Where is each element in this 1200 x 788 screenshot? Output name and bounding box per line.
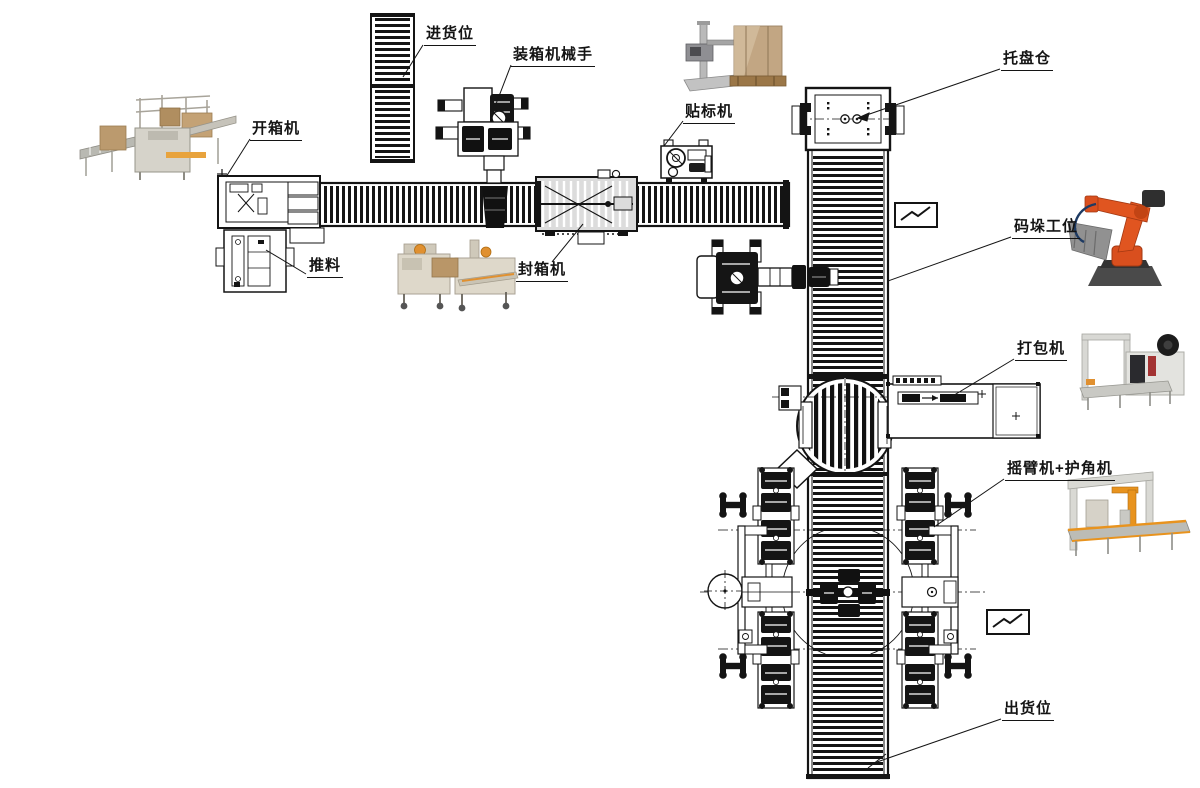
strapping-machine-photo [1080,334,1184,410]
case-sealer-photo [398,240,518,311]
label-rotary-arm-wrapper: 摇臂机+护角机 [1005,461,1115,481]
label-outfeed-position: 出货位 [1002,701,1054,721]
label-strapping-machine: 打包机 [1015,341,1067,361]
label-case-erector: 开箱机 [250,121,302,141]
line-art-canvas [0,0,1200,788]
pallet-magazine-drawing [792,88,904,150]
pallet-labeler-photo [684,21,786,91]
labeling-machine-drawing [661,140,712,183]
label-pallet-magazine: 托盘仓 [1001,51,1053,71]
break-symbol-top [895,203,937,227]
infeed-conveyor-drawing [371,14,414,162]
case-sealer-drawing [536,170,637,244]
label-case-sealer: 封箱机 [516,262,568,282]
label-palletizing-station: 码垛工位 [1012,219,1080,239]
layout-diagram: 进货位 装箱机械手 开箱机 推料 封箱机 贴标机 托盘仓 码垛工位 打包机 摇臂… [0,0,1200,788]
label-infeed-position: 进货位 [424,26,476,46]
label-case-packer-robot: 装箱机械手 [511,47,595,67]
break-symbol-bottom [987,610,1029,634]
case-erector-photo [80,95,236,180]
rotary-arm-wrapper-photo [1068,472,1190,556]
palletizing-robot-photo [1068,190,1165,286]
label-pusher: 推料 [307,258,343,278]
label-labeling-machine: 贴标机 [683,104,735,124]
